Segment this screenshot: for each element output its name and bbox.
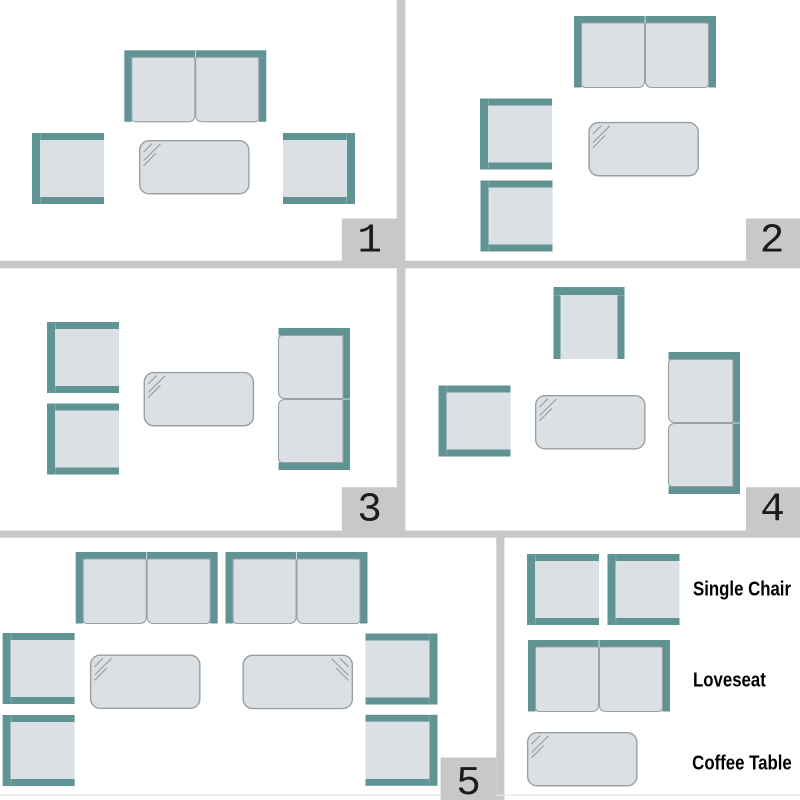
svg-text:Loveseat: Loveseat — [693, 668, 767, 691]
svg-text:3: 3 — [357, 488, 382, 534]
svg-text:4: 4 — [760, 488, 785, 534]
svg-text:5: 5 — [456, 761, 481, 800]
svg-text:Coffee Table: Coffee Table — [692, 751, 792, 774]
svg-text:Single Chair: Single Chair — [693, 577, 791, 600]
svg-text:2: 2 — [760, 218, 785, 264]
svg-text:1: 1 — [357, 218, 382, 264]
